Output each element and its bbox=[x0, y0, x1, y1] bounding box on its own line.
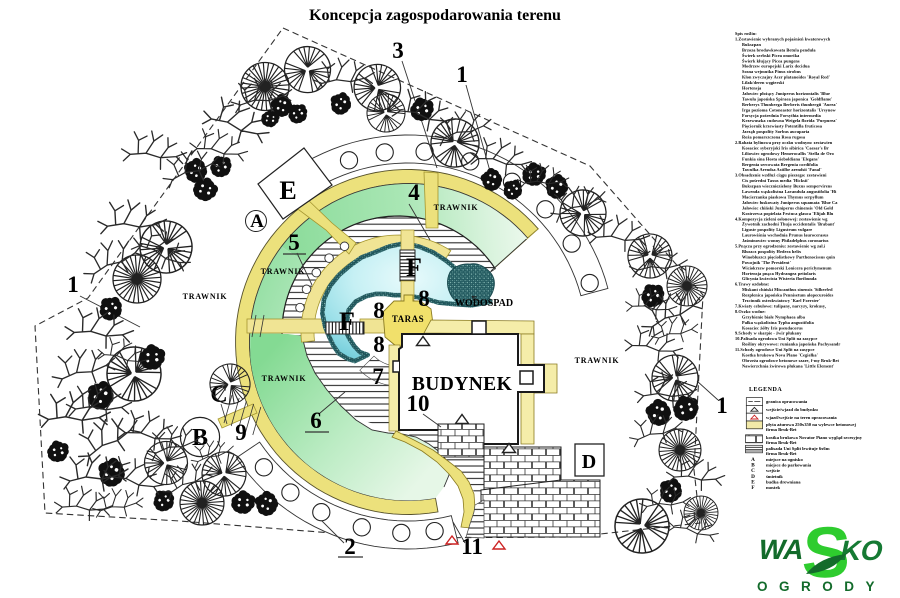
svg-text:Pięciornik krzewiasty Potentil: Pięciornik krzewiasty Potentilla frutico… bbox=[742, 124, 823, 129]
svg-text:granica opracowania: granica opracowania bbox=[766, 399, 808, 404]
svg-text:Tawuła japońska Spiraea japoni: Tawuła japońska Spiraea japonica 'Goldfl… bbox=[742, 96, 832, 101]
svg-text:Jałowiec płożący Juniperus hor: Jałowiec płożący Juniperus horizontalis … bbox=[742, 91, 830, 96]
svg-text:mostek: mostek bbox=[766, 485, 780, 490]
svg-text:LEGENDA: LEGENDA bbox=[749, 387, 782, 393]
svg-text:5: 5 bbox=[288, 230, 300, 255]
svg-text:Tawułka Arendsa Astilbe arends: Tawułka Arendsa Astilbe arendsii 'Fanal' bbox=[742, 167, 822, 172]
svg-text:Powojnik 'The President': Powojnik 'The President' bbox=[742, 260, 791, 265]
svg-text:Jaśminowiec wonny Philadelphus: Jaśminowiec wonny Philadelphus coronariu… bbox=[742, 238, 829, 243]
svg-text:Świerk kłujący Picea pungens: Świerk kłujący Picea pungens bbox=[742, 58, 800, 63]
svg-text:Laurowiśnia wschodnia Prunus l: Laurowiśnia wschodnia Prunus laurocerasu… bbox=[742, 233, 829, 238]
svg-text:4.Kompozycja zieleni osłonowej: 4.Kompozycja zieleni osłonowej: zestawie… bbox=[735, 216, 828, 221]
svg-text:Rozplenica japońska Pennisetum: Rozplenica japońska Pennisetum alopecuro… bbox=[742, 293, 834, 298]
svg-text:Macierzanka piaskowa Thymus se: Macierzanka piaskowa Thymus serpyllum bbox=[742, 195, 824, 200]
svg-text:8: 8 bbox=[373, 298, 385, 323]
svg-text:Modrzew europejski Larix decid: Modrzew europejski Larix decidua bbox=[742, 64, 810, 69]
svg-text:Pałka wąskolistna Typha angust: Pałka wąskolistna Typha angustifolia bbox=[742, 320, 815, 325]
svg-text:F: F bbox=[339, 307, 355, 336]
svg-text:1: 1 bbox=[67, 272, 79, 297]
svg-text:Ligustr pospolity Ligustrum vu: Ligustr pospolity Ligustrum vulgare bbox=[742, 227, 812, 232]
svg-text:Roża pomarszczona Rosa rugosa: Roża pomarszczona Rosa rugosa bbox=[742, 135, 806, 140]
svg-text:9: 9 bbox=[235, 420, 247, 445]
svg-text:8: 8 bbox=[373, 332, 385, 357]
svg-text:Bukszpan: Bukszpan bbox=[742, 42, 761, 47]
svg-text:Funkia sina Hosta sieboldiana: Funkia sina Hosta sieboldiana 'Elegans' bbox=[742, 156, 819, 161]
svg-text:Jałowiec łuskowaty Juniperus s: Jałowiec łuskowaty Juniperus squamata 'B… bbox=[742, 200, 838, 205]
svg-text:Kosaciec żółty Iris pseudacoru: Kosaciec żółty Iris pseudacorus bbox=[742, 325, 803, 330]
svg-text:wejście: wejście bbox=[766, 468, 780, 473]
svg-text:6.Trawy ozdobne:: 6.Trawy ozdobne: bbox=[735, 282, 770, 287]
svg-text:OGRODY: OGRODY bbox=[757, 579, 886, 594]
svg-text:Irga pozioma Cotoneaster horiz: Irga pozioma Cotoneaster horizontalis 'U… bbox=[742, 107, 837, 112]
svg-text:miejsce na ognisko: miejsce na ognisko bbox=[766, 457, 803, 462]
svg-text:Bluszcz pospolity Hedera helix: Bluszcz pospolity Hedera helix bbox=[742, 249, 802, 254]
svg-text:Forsycja pośrednia Forsythia i: Forsycja pośrednia Forsythia intermedia bbox=[742, 113, 822, 118]
svg-text:WODOSPAD: WODOSPAD bbox=[455, 298, 513, 309]
svg-text:7: 7 bbox=[372, 364, 384, 389]
svg-text:Grzybienie białe Nymphaea alba: Grzybienie białe Nymphaea alba bbox=[742, 314, 806, 319]
svg-text:Lawenda wąskolistna Lavandula: Lawenda wąskolistna Lavandula angustifol… bbox=[742, 189, 837, 194]
svg-text:wjazd/wejście na teren opracow: wjazd/wejście na teren opracowania bbox=[766, 415, 837, 420]
svg-text:TRAWNIK: TRAWNIK bbox=[262, 374, 307, 383]
svg-text:Liliowiec ogrodowy Hemerocalli: Liliowiec ogrodowy Hemerocallis 'Stella … bbox=[742, 151, 834, 156]
svg-text:Brzoza brodawkowata Betula pen: Brzoza brodawkowata Betula pendula bbox=[742, 47, 816, 52]
svg-text:1.Zestawienie wybranych pojaśn: 1.Zestawienie wybranych pojaśnień kwater… bbox=[735, 37, 831, 42]
svg-text:Berberys Thunberga Berberis th: Berberys Thunberga Berberis thunbergii '… bbox=[742, 102, 837, 107]
svg-text:Świerk serbski Picea omorika: Świerk serbski Picea omorika bbox=[742, 53, 800, 58]
svg-text:Kostka brukowa Nova Plano 'Ceg: Kostka brukowa Nova Plano 'Cegiełka' bbox=[742, 353, 818, 358]
svg-text:3: 3 bbox=[392, 38, 404, 63]
svg-text:F: F bbox=[406, 253, 422, 282]
svg-text:D: D bbox=[582, 451, 596, 473]
svg-text:KO: KO bbox=[838, 534, 887, 566]
svg-text:TRAWNIK: TRAWNIK bbox=[183, 292, 228, 301]
svg-text:11: 11 bbox=[461, 534, 483, 559]
svg-text:Hortensja: Hortensja bbox=[742, 86, 762, 91]
svg-text:9.Schody w skarpie - żwir płuk: 9.Schody w skarpie - żwir płukany bbox=[735, 331, 802, 336]
svg-text:Hortensja pnąca Hydrangea peti: Hortensja pnąca Hydrangea petiolaris bbox=[742, 271, 816, 276]
svg-text:Trzcinnik ostrokwiatowy 'Karl: Trzcinnik ostrokwiatowy 'Karl Foerster' bbox=[742, 298, 820, 303]
svg-text:firma Bruk-Bet: firma Bruk-Bet bbox=[766, 451, 797, 456]
svg-text:Żywotnik zachodni Thuja occide: Żywotnik zachodni Thuja occidentalis 'Br… bbox=[742, 222, 835, 227]
svg-text:TRAWNIK: TRAWNIK bbox=[261, 267, 306, 276]
svg-text:Miskant chiński Miscanthus sin: Miskant chiński Miscanthus sinensis 'Sil… bbox=[742, 287, 833, 292]
svg-text:Sosna wejmutka Pinus strobus: Sosna wejmutka Pinus strobus bbox=[742, 69, 801, 74]
svg-text:A: A bbox=[250, 211, 264, 232]
svg-text:8: 8 bbox=[418, 286, 430, 311]
svg-text:TRAWNIK: TRAWNIK bbox=[434, 203, 479, 212]
svg-text:1: 1 bbox=[716, 393, 728, 418]
svg-text:Winobluszcz pięciolistkowy Par: Winobluszcz pięciolistkowy Parthenocissu… bbox=[742, 254, 835, 259]
svg-text:11.Schody ogrodowe Uni Split n: 11.Schody ogrodowe Uni Split na zasypce bbox=[735, 347, 815, 352]
svg-text:F: F bbox=[751, 485, 754, 491]
svg-text:Bergenia sercowata Bergenia co: Bergenia sercowata Bergenia cordifolia bbox=[742, 162, 819, 167]
svg-text:B: B bbox=[192, 425, 208, 451]
svg-text:miejsce do parkowania: miejsce do parkowania bbox=[766, 463, 812, 468]
svg-text:E: E bbox=[279, 176, 296, 205]
svg-text:5.Pnącza przy ogrodzeniu: zest: 5.Pnącza przy ogrodzeniu: zestawienie wg… bbox=[735, 244, 826, 249]
svg-text:Kostrzewa popielata Festuca gl: Kostrzewa popielata Festuca glauca 'Elij… bbox=[742, 211, 834, 216]
svg-text:10: 10 bbox=[407, 391, 430, 416]
svg-text:Glicynia kwiecista Wisteria fl: Glicynia kwiecista Wisteria floribunda bbox=[742, 276, 817, 281]
svg-text:1: 1 bbox=[456, 62, 468, 87]
svg-text:śmietnik: śmietnik bbox=[766, 474, 783, 479]
svg-text:Koncepcja zagospodarowania ter: Koncepcja zagospodarowania terenu bbox=[309, 7, 561, 24]
svg-text:Cis pośredni Taxus media 'Hick: Cis pośredni Taxus media 'Hicksii' bbox=[742, 178, 809, 183]
svg-text:2.Rabata bylinowa przy oczku w: 2.Rabata bylinowa przy oczku wodnym: zes… bbox=[735, 140, 833, 145]
svg-text:WA: WA bbox=[756, 533, 808, 565]
svg-text:Bukszpan wieczniezielony Buxus: Bukszpan wieczniezielony Buxus sempervir… bbox=[742, 184, 832, 189]
svg-text:Rośliny okrywowe: runianka jap: Rośliny okrywowe: runianka japońska Pach… bbox=[742, 342, 840, 347]
svg-text:TARAS: TARAS bbox=[392, 314, 424, 324]
svg-text:TRAWNIK: TRAWNIK bbox=[575, 356, 620, 365]
svg-text:firma Bruk-Bet: firma Bruk-Bet bbox=[766, 427, 797, 432]
svg-text:4: 4 bbox=[408, 180, 420, 205]
svg-text:Jarząb pospolity Sorbus aucupa: Jarząb pospolity Sorbus aucuparia bbox=[742, 129, 810, 134]
svg-text:3.Obsadzenie wzdłuż ciągu pies: 3.Obsadzenie wzdłuż ciągu pieszego: zest… bbox=[735, 173, 827, 178]
svg-text:Obrzeża ogrodowe betonowe szar: Obrzeża ogrodowe betonowe szare, f-my Br… bbox=[742, 358, 840, 363]
svg-text:Lilak/deren węgierski: Lilak/deren węgierski bbox=[742, 80, 785, 85]
svg-text:Kosaciec syberyjski Iris sibir: Kosaciec syberyjski Iris sibirica 'Caesa… bbox=[742, 146, 829, 151]
svg-text:Nawierzchnia żwirowa płukana ': Nawierzchnia żwirowa płukana 'Little Ele… bbox=[742, 363, 834, 368]
svg-text:budka drewniana: budka drewniana bbox=[766, 479, 801, 484]
svg-text:Klon zwyczajny Acer platanoide: Klon zwyczajny Acer platanoides 'Royal R… bbox=[742, 75, 830, 80]
svg-text:Wiciokrzew pomorski Lonicera p: Wiciokrzew pomorski Lonicera periclymenu… bbox=[742, 265, 832, 270]
svg-text:7.Kwiaty cebulowe: tulipany, n: 7.Kwiaty cebulowe: tulipany, narcyzy, kr… bbox=[735, 304, 826, 309]
svg-text:2: 2 bbox=[344, 534, 356, 559]
svg-text:6: 6 bbox=[310, 408, 322, 433]
svg-text:10.Palisada ogrodowa Uni Split: 10.Palisada ogrodowa Uni Split na zasypc… bbox=[735, 336, 817, 341]
svg-text:Krzewuszka cudowna Weigela flo: Krzewuszka cudowna Weigela florida 'Purp… bbox=[742, 118, 837, 123]
svg-text:Spis roślin:: Spis roślin: bbox=[735, 31, 757, 36]
svg-text:8.Oczko wodne:: 8.Oczko wodne: bbox=[735, 309, 766, 314]
svg-text:wejście/wjazd do budynku: wejście/wjazd do budynku bbox=[766, 407, 818, 412]
svg-text:Jałowiec chiński Juniperus chi: Jałowiec chiński Juniperus chinensis 'Ol… bbox=[742, 205, 834, 210]
svg-text:firma Bruk-Bet: firma Bruk-Bet bbox=[766, 440, 797, 445]
